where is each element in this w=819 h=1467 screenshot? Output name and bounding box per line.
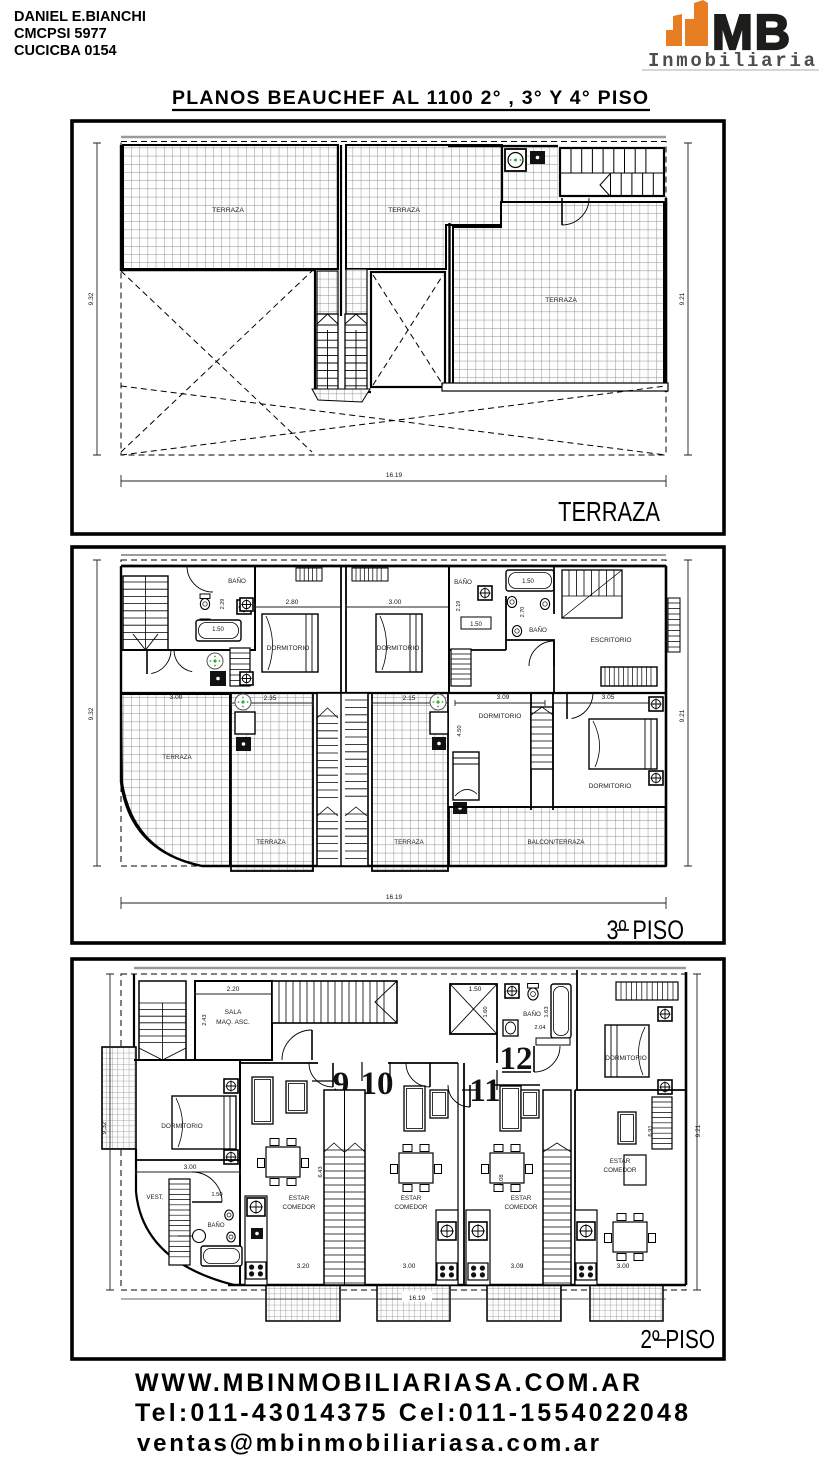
svg-text:3.05: 3.05 bbox=[602, 694, 615, 701]
svg-text:DORMITORIO: DORMITORIO bbox=[605, 1055, 646, 1062]
svg-text:DANIEL E.BIANCHI: DANIEL E.BIANCHI bbox=[14, 9, 146, 25]
svg-text:Tel:011-43014375 Cel:011-15540: Tel:011-43014375 Cel:011-1554022048 bbox=[135, 1399, 688, 1427]
svg-text:3.00: 3.00 bbox=[184, 1164, 197, 1171]
svg-text:TERRAZA: TERRAZA bbox=[256, 839, 286, 846]
svg-text:1.50: 1.50 bbox=[470, 622, 482, 628]
svg-text:3.00: 3.00 bbox=[403, 1263, 416, 1270]
svg-text:3º PISO: 3º PISO bbox=[607, 916, 684, 946]
svg-text:DORMITORIO: DORMITORIO bbox=[479, 713, 522, 720]
svg-text:2.19: 2.19 bbox=[456, 601, 462, 612]
svg-text:MAQ. ASC.: MAQ. ASC. bbox=[216, 1019, 250, 1026]
svg-text:BAÑO: BAÑO bbox=[454, 577, 472, 586]
svg-text:TERRAZA: TERRAZA bbox=[545, 297, 577, 304]
svg-text:ESTAR: ESTAR bbox=[289, 1195, 310, 1202]
svg-text:ESTAR: ESTAR bbox=[610, 1158, 631, 1165]
svg-text:1.50: 1.50 bbox=[212, 627, 224, 633]
svg-text:2.70: 2.70 bbox=[520, 607, 526, 618]
svg-text:ESCRITORIO: ESCRITORIO bbox=[591, 637, 632, 644]
svg-text:COMEDOR: COMEDOR bbox=[395, 1204, 428, 1211]
svg-text:3.09: 3.09 bbox=[511, 1263, 524, 1270]
svg-text:1.50: 1.50 bbox=[522, 579, 534, 585]
svg-text:TERRAZA: TERRAZA bbox=[394, 839, 424, 846]
svg-text:CUCICBA 0154: CUCICBA 0154 bbox=[14, 43, 117, 59]
svg-text:3.09: 3.09 bbox=[497, 694, 510, 701]
svg-text:2.29: 2.29 bbox=[220, 599, 226, 610]
svg-text:ESTAR: ESTAR bbox=[511, 1195, 532, 1202]
svg-text:16.19: 16.19 bbox=[386, 894, 403, 901]
svg-text:6.08: 6.08 bbox=[499, 1174, 505, 1185]
svg-text:3.20: 3.20 bbox=[297, 1263, 310, 1270]
svg-text:9.21: 9.21 bbox=[679, 292, 686, 305]
svg-text:DORMITORIO: DORMITORIO bbox=[161, 1123, 202, 1130]
svg-text:TERRAZA: TERRAZA bbox=[212, 207, 244, 214]
svg-text:CMCPSI 5977: CMCPSI 5977 bbox=[14, 26, 107, 42]
svg-text:COMEDOR: COMEDOR bbox=[604, 1167, 637, 1174]
svg-text:BALCON/TERRAZA: BALCON/TERRAZA bbox=[527, 839, 585, 846]
svg-text:9.32: 9.32 bbox=[88, 707, 95, 720]
svg-text:TERRAZA: TERRAZA bbox=[162, 754, 192, 761]
svg-text:PLANOS BEAUCHEF AL 1100 2° , 3: PLANOS BEAUCHEF AL 1100 2° , 3° Y 4° PIS… bbox=[172, 87, 648, 109]
svg-text:BAÑO: BAÑO bbox=[228, 576, 246, 585]
svg-text:ventas@mbinmobiliariasa.com.ar: ventas@mbinmobiliariasa.com.ar bbox=[137, 1430, 599, 1457]
svg-text:2.04: 2.04 bbox=[534, 1025, 546, 1031]
svg-text:3.00: 3.00 bbox=[389, 599, 402, 606]
svg-text:2.43: 2.43 bbox=[202, 1014, 208, 1025]
svg-text:6.43: 6.43 bbox=[318, 1166, 324, 1177]
svg-text:11: 11 bbox=[469, 1073, 500, 1109]
svg-text:DORMITORIO: DORMITORIO bbox=[267, 645, 310, 652]
svg-text:DORMITORIO: DORMITORIO bbox=[377, 645, 420, 652]
svg-text:DORMITORIO: DORMITORIO bbox=[589, 783, 632, 790]
svg-text:BAÑO: BAÑO bbox=[523, 1009, 541, 1018]
svg-text:4.50: 4.50 bbox=[457, 725, 463, 736]
svg-text:16.19: 16.19 bbox=[386, 472, 403, 479]
svg-text:9.21: 9.21 bbox=[679, 709, 686, 722]
svg-text:9.32: 9.32 bbox=[88, 292, 95, 305]
svg-text:1.60: 1.60 bbox=[483, 1006, 489, 1017]
svg-text:ESTAR: ESTAR bbox=[401, 1195, 422, 1202]
svg-text:2.80: 2.80 bbox=[286, 599, 299, 606]
svg-text:2.15: 2.15 bbox=[403, 695, 416, 702]
svg-text:VEST.: VEST. bbox=[146, 1194, 163, 1201]
svg-text:SALA: SALA bbox=[225, 1009, 242, 1016]
svg-text:TERRAZA: TERRAZA bbox=[388, 207, 420, 214]
svg-text:16.19: 16.19 bbox=[409, 1295, 426, 1302]
svg-text:2.20: 2.20 bbox=[227, 986, 240, 993]
svg-text:3.00: 3.00 bbox=[617, 1263, 630, 1270]
svg-text:COMEDOR: COMEDOR bbox=[283, 1204, 316, 1211]
svg-text:3.00: 3.00 bbox=[170, 694, 183, 701]
svg-text:2º PISO: 2º PISO bbox=[640, 1325, 715, 1354]
svg-text:9.21: 9.21 bbox=[695, 1124, 702, 1137]
svg-text:1.63: 1.63 bbox=[544, 1006, 550, 1017]
svg-text:BAÑO: BAÑO bbox=[529, 625, 547, 634]
svg-text:1.50: 1.50 bbox=[469, 986, 482, 993]
svg-text:TERRAZA: TERRAZA bbox=[558, 496, 660, 527]
svg-text:9.32: 9.32 bbox=[101, 1121, 108, 1134]
svg-text:BAÑO: BAÑO bbox=[207, 1222, 224, 1229]
svg-text:2.35: 2.35 bbox=[264, 695, 277, 702]
svg-text:COMEDOR: COMEDOR bbox=[505, 1204, 538, 1211]
svg-text:6.91: 6.91 bbox=[648, 1125, 654, 1136]
